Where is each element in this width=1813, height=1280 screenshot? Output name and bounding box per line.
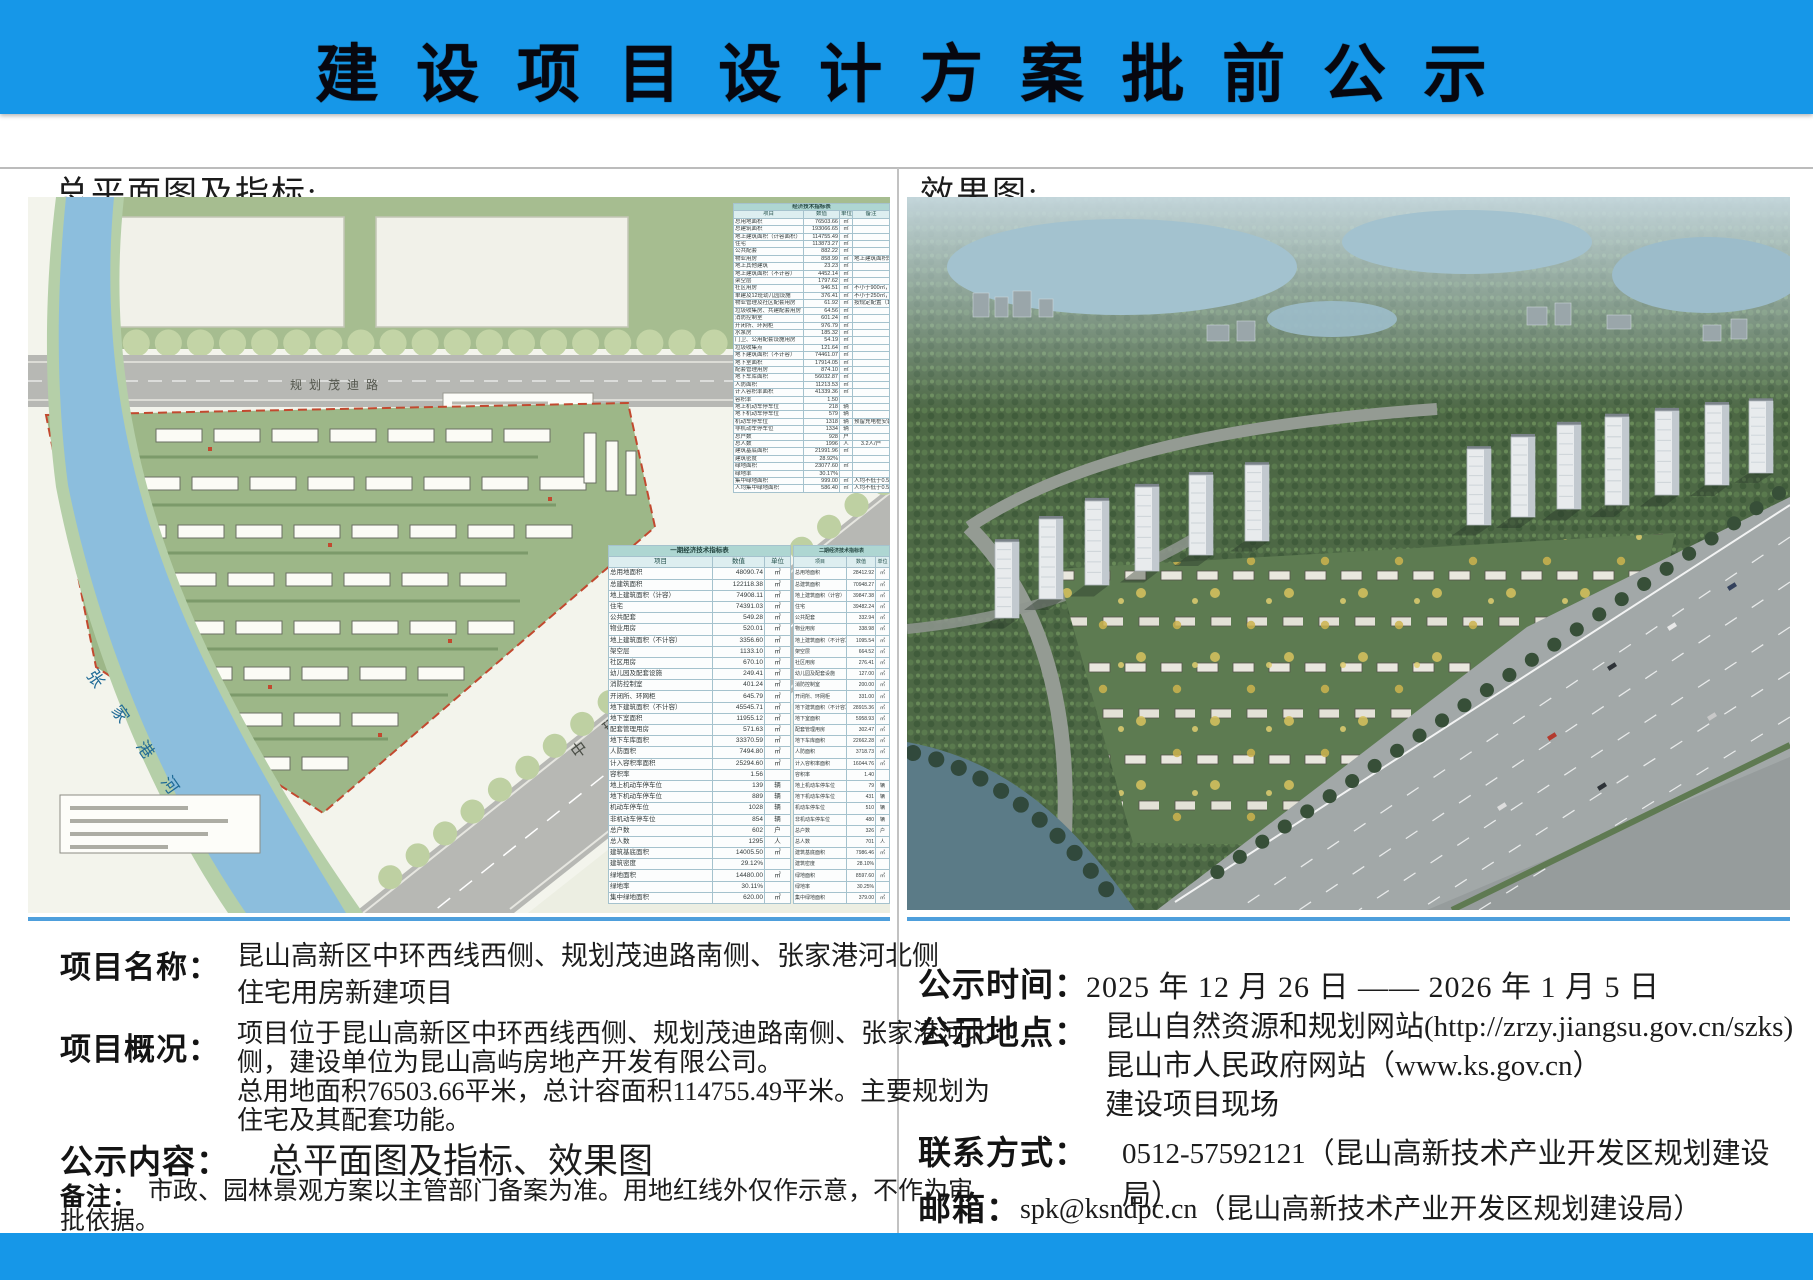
table-row: 总人数1295人 — [609, 836, 791, 847]
table-row: 垃圾收集点121.64 ㎡ — [734, 344, 890, 351]
left-image-underline — [28, 917, 890, 921]
table-row: 总人数1996 人3.2人/户 — [734, 441, 890, 448]
legend-box — [60, 795, 260, 853]
table-row: 地上机动车停车位218 辆 — [734, 403, 890, 410]
right-image-underline — [907, 917, 1790, 921]
table-row: 社区用房946.51 ㎡不小于900㎡，沿入口道路设置 — [734, 285, 890, 292]
table-row: 开闭所、环网柜645.79㎡ — [609, 691, 791, 702]
table-row: 建筑基底面积14005.50㎡ — [609, 848, 791, 859]
table-row: 幼儿园及配套设施249.41㎡ — [609, 669, 791, 680]
table-row: 总建筑面积122118.38㎡ — [609, 579, 791, 590]
table-row: 地上建筑面积（计容）74908.11㎡ — [609, 590, 791, 601]
phase2-indicator-table: 二期经济技术指标表 项目 数值 单位 总用地面积28412.92㎡ 总建筑面积7… — [793, 545, 890, 904]
table-row: 计入容积率面积41339.36 ㎡ — [734, 389, 890, 396]
table-row: 地下建筑面积（不计容）28915.36㎡ — [794, 702, 890, 713]
table-row: 绿地率30.25% — [794, 881, 890, 892]
table-row: 幼儿园及配套设施127.00㎡ — [794, 669, 890, 680]
table-row: 建筑基底面积7986.46㎡ — [794, 848, 890, 859]
table-row: 公共配套549.28㎡ — [609, 613, 791, 624]
table-row: 地上机动车停车位79辆 — [794, 780, 890, 791]
table-row: 地下车库面积22662.28㎡ — [794, 736, 890, 747]
table-row: 绿地面积23077.60 ㎡ — [734, 463, 890, 470]
notice-poster: 建 设 项 目 设 计 方 案 批 前 公 示 总平面图及指标: 效果图: 规划… — [0, 0, 1813, 1280]
project-overview-label: 项目概况： — [60, 1024, 220, 1069]
table-row: 开闭所、环网柜331.00㎡ — [794, 691, 890, 702]
table-row: 地下车库面积56032.87 ㎡ — [734, 374, 890, 381]
table-row: 建筑密度28.92% — [734, 455, 890, 462]
table-row: 物业用房338.98㎡ — [794, 624, 890, 635]
table-row: 地上其他建筑23.23 ㎡ — [734, 263, 890, 270]
notice-content-label: 公示内容： — [60, 1135, 230, 1183]
table-row: 绿地面积8597.60㎡ — [794, 870, 890, 881]
table-row: 绿地率30.17% — [734, 470, 890, 477]
text-line: 住宅及其配套功能。 — [237, 1106, 991, 1135]
table-row: 建筑密度29.12% — [609, 859, 791, 870]
table-row: 人防面积11213.53 ㎡ — [734, 381, 890, 388]
table-row: 机动车停车位510辆 — [794, 803, 890, 814]
email-value: spk@ksndpc.cn（昆山高新技术产业开发区规划建设局） — [1020, 1187, 1701, 1227]
table-row: 计入容积率面积25294.60㎡ — [609, 758, 791, 769]
table-row: 公共配套882.22 ㎡ — [734, 248, 890, 255]
table-row: 地下建筑面积（不计容）45545.71㎡ — [609, 702, 791, 713]
top-road-label: 规划茂迪路 — [290, 377, 385, 392]
email-label: 邮箱： — [918, 1182, 1020, 1230]
phase1-indicator-table: 一期经济技术指标表 项目 数值 单位 总用地面积48090.74㎡ 总建筑面积1… — [608, 545, 791, 904]
table-row: 地下室面积5958.93㎡ — [794, 713, 890, 724]
rendering-image — [907, 197, 1790, 910]
table-row: 垃圾收集房、共建配套用房64.56 ㎡ — [734, 307, 890, 314]
table-row: 单建及12班幼儿园设施376.41 ㎡不小于250㎡，按规定配建管理用房 — [734, 292, 890, 299]
table-row: 容积率1.40 — [794, 769, 890, 780]
table-row: 公共配套332.94㎡ — [794, 613, 890, 624]
table-row: 总户数928 户 — [734, 433, 890, 440]
lakes-and-distance — [907, 197, 1790, 412]
text-line: 建设项目现场 — [1105, 1086, 1793, 1125]
text-line: 侧，建设单位为昆山高屿房地产开发有限公司。 — [237, 1048, 991, 1077]
table-row: 门卫、公用配套设施用房54.19 ㎡ — [734, 337, 890, 344]
table-row: 地下机动车停车位431辆 — [794, 792, 890, 803]
table-row: 地下室面积17914.05 ㎡ — [734, 359, 890, 366]
page-title: 建 设 项 目 设 计 方 案 批 前 公 示 — [0, 24, 1813, 115]
table-row: 总用地面积28412.92㎡ — [794, 568, 890, 579]
table-row: 总用地面积76503.66 ㎡ — [734, 218, 890, 225]
table-row: 人防面积7494.80㎡ — [609, 747, 791, 758]
notice-time-label: 公示时间： — [918, 958, 1088, 1006]
table-row: 集中绿地面积620.00㎡ — [609, 892, 791, 903]
table-row: 架空层1797.62 ㎡ — [734, 278, 890, 285]
text-line: 住宅用房新建项目 — [237, 975, 939, 1012]
table-row: 非机动车停车位854辆 — [609, 814, 791, 825]
table-row: 消防控制室601.24 ㎡ — [734, 315, 890, 322]
text-line: 总用地面积76503.66平米，总计容面积114755.49平米。主要规划为 — [237, 1077, 991, 1106]
table-row: 计入容积率面积16044.76㎡ — [794, 758, 890, 769]
table-row: 消防控制室401.24㎡ — [609, 680, 791, 691]
text-line: 昆山市人民政府网站（www.ks.gov.cn） — [1105, 1047, 1793, 1086]
text-line: 昆山高新区中环西线西侧、规划茂迪路南侧、张家港河北侧 — [237, 938, 939, 975]
table-row: 地下机动车停车位889辆 — [609, 792, 791, 803]
text-line: 市政、园林景观方案以主管部门备案为准。用地红线外仅作示意，不作为审 — [148, 1177, 973, 1207]
table-row: 总建筑面积193066.65 ㎡ — [734, 226, 890, 233]
table-row: 集中绿地面积379.00㎡ — [794, 892, 890, 903]
table-row: 消防控制室200.00㎡ — [794, 680, 890, 691]
table-row: 建筑基底面积21991.96 ㎡ — [734, 448, 890, 455]
project-name-label: 项目名称： — [60, 942, 220, 987]
contact-label: 联系方式： — [918, 1126, 1088, 1174]
table-row: 绿地面积14480.00㎡ — [609, 870, 791, 881]
table-row: 开闭所、环网柜976.79 ㎡ — [734, 322, 890, 329]
table-row: 地上建筑面积（计容）39847.38㎡ — [794, 590, 890, 601]
table-row: 集中绿地面积999.00 ㎡人均不低于0.5平方米 — [734, 478, 890, 485]
table-row: 容积率1.50 — [734, 396, 890, 403]
table-row: 绿地率30.11% — [609, 881, 791, 892]
text-line: 昆山自然资源和规划网站(http://zrzy.jiangsu.gov.cn/s… — [1105, 1008, 1793, 1047]
table-row: 架空层664.52㎡ — [794, 646, 890, 657]
notice-place-label: 公示地点： — [918, 1006, 1088, 1054]
table-row: 总建筑面积70948.27㎡ — [794, 579, 890, 590]
table-row: 建筑密度28.10% — [794, 859, 890, 870]
table-row: 住宅74391.03㎡ — [609, 601, 791, 612]
note-value: 市政、园林景观方案以主管部门备案为准。用地红线外仅作示意，不作为审 批依据。 — [148, 1177, 973, 1237]
table-row: 总人数701人 — [794, 836, 890, 847]
table-row: 地上建筑面积（不计容）4452.14 ㎡ — [734, 270, 890, 277]
table-row: 总户数602户 — [609, 825, 791, 836]
table-row: 总户数326户 — [794, 825, 890, 836]
table-row: 机动车停车位1318 辆预留充电桩安装条件 — [734, 418, 890, 425]
table-row: 人均集中绿地面积586.40 ㎡人均不低于0.5平方米 — [734, 485, 890, 492]
notice-place-value: 昆山自然资源和规划网站(http://zrzy.jiangsu.gov.cn/s… — [1105, 1008, 1793, 1125]
footer-band — [0, 1233, 1813, 1280]
table-row: 配套管理用房302.47㎡ — [794, 725, 890, 736]
table-row: 地上建筑面积（不计容）3356.60㎡ — [609, 635, 791, 646]
table-row: 总用地面积48090.74㎡ — [609, 568, 791, 579]
table-row: 物业用房858.99 ㎡地上建筑面积的0.75% — [734, 255, 890, 262]
table-row: 地下机动车停车位579 辆 — [734, 411, 890, 418]
table-row: 地下建筑面积（不计容）74461.07 ㎡ — [734, 352, 890, 359]
table-row: 社区用房670.10㎡ — [609, 657, 791, 668]
table-row: 水泵房185.32 ㎡ — [734, 329, 890, 336]
text-line: 项目位于昆山高新区中环西线西侧、规划茂迪路南侧、张家港河北 — [237, 1019, 991, 1048]
table-row: 架空层1133.10㎡ — [609, 646, 791, 657]
project-name-value: 昆山高新区中环西线西侧、规划茂迪路南侧、张家港河北侧住宅用房新建项目 — [237, 938, 939, 1012]
table-row: 地上建筑面积（不计容）1095.54㎡ — [794, 635, 890, 646]
table-row: 住宅39482.24㎡ — [794, 601, 890, 612]
table-row: 容积率1.56 — [609, 769, 791, 780]
table-row: 非机动车停车位480辆 — [794, 814, 890, 825]
table-row: 社区用房276.41㎡ — [794, 657, 890, 668]
project-overview-value: 项目位于昆山高新区中环西线西侧、规划茂迪路南侧、张家港河北侧，建设单位为昆山高屿… — [237, 1019, 991, 1135]
table-row: 住宅113873.27 ㎡ — [734, 241, 890, 248]
table-row: 非机动车停车位1334 辆 — [734, 426, 890, 433]
table-row: 地下室面积11955.12㎡ — [609, 713, 791, 724]
table-row: 配套管理用房571.63㎡ — [609, 725, 791, 736]
table-row: 物业用房520.01㎡ — [609, 624, 791, 635]
table-row: 配套管理用房874.10 ㎡ — [734, 366, 890, 373]
notice-time-value: 2025 年 12 月 26 日 —— 2026 年 1 月 5 日 — [1086, 962, 1660, 1006]
table-row: 机动车停车位1028辆 — [609, 803, 791, 814]
table-row: 人防面积3718.73㎡ — [794, 747, 890, 758]
table-row: 物业管理及社区配套用房61.92 ㎡按规定配置（100%）2处 — [734, 300, 890, 307]
table-row: 地上机动车停车位139辆 — [609, 780, 791, 791]
economic-indicator-table: 经济技术指标表 项目 数值 单位 备注 总用地面积76503.66 ㎡ 总建筑面… — [733, 203, 890, 493]
table-row: 地上建筑面积（计容面积）114755.49 ㎡ — [734, 233, 890, 240]
table-row: 地下车库面积33370.59㎡ — [609, 736, 791, 747]
